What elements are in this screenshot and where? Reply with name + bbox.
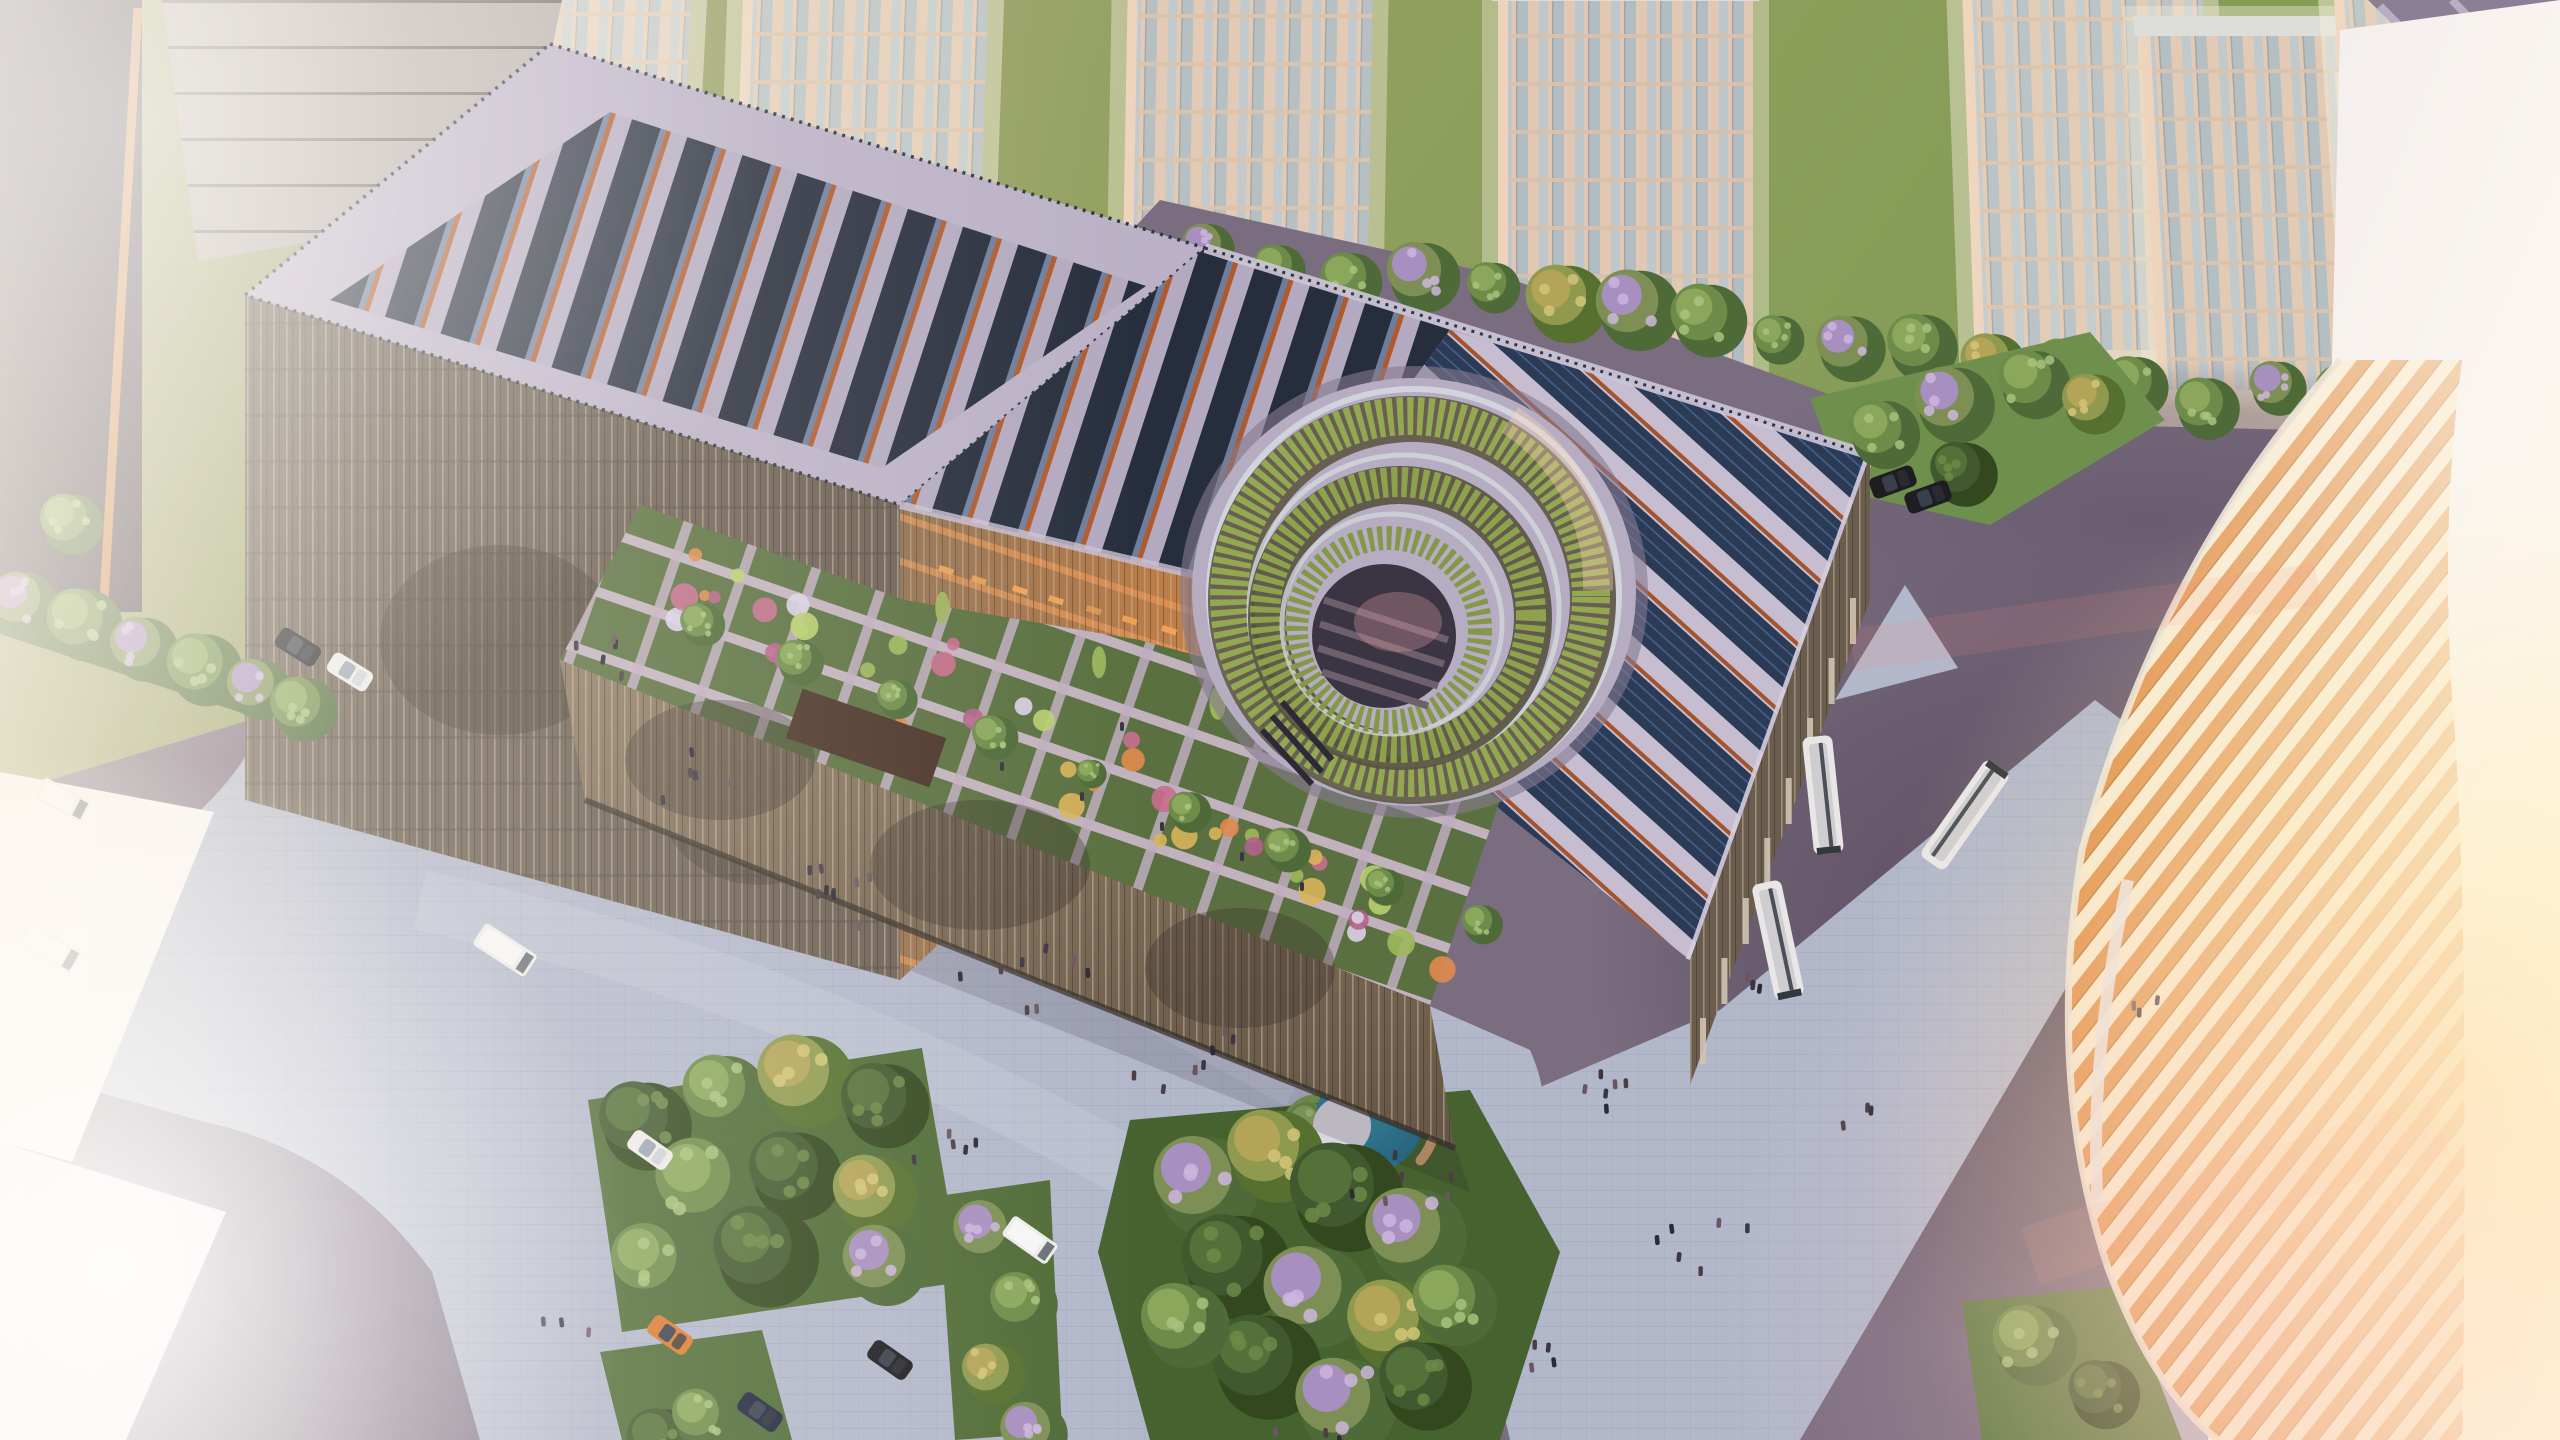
person [1750,980,1755,990]
person [1698,1266,1703,1276]
colonnade-post [1743,898,1749,944]
amphitheater [1186,372,1642,812]
colonnade-post [1721,958,1727,1004]
flower-patch [1154,834,1167,847]
flower-patch [1209,827,1222,840]
colonnade-post [1700,1018,1706,1064]
flower-patch [1245,837,1264,856]
flower-patch [1299,878,1326,905]
person [1201,1060,1206,1070]
flower-patch [1429,956,1455,982]
architectural-rendering: Aerial dusk rendering of a terraced eco … [0,0,2560,1440]
person [1449,1172,1454,1182]
flower-patch [1352,911,1364,923]
person [1240,852,1244,861]
flower-patch [1387,929,1415,957]
person [1160,822,1164,831]
person [1222,1027,1227,1037]
scene-svg [0,0,2560,1440]
person [1613,1079,1618,1089]
person [1599,1069,1604,1079]
colonnade-post [1786,778,1792,824]
flower-patch [1220,818,1239,837]
person [1399,1172,1404,1182]
person [1300,882,1304,891]
person [1604,1104,1609,1114]
person [1193,1065,1198,1075]
colonnade-post [1764,838,1770,884]
person [1532,1340,1537,1350]
facade-reflection-3 [1145,908,1335,1028]
person [1273,1427,1278,1437]
colonnade-post [1829,658,1835,704]
person [1623,1078,1628,1088]
person [1231,1034,1236,1044]
atrium-core-sheen [1354,592,1442,652]
person [1716,1218,1721,1228]
